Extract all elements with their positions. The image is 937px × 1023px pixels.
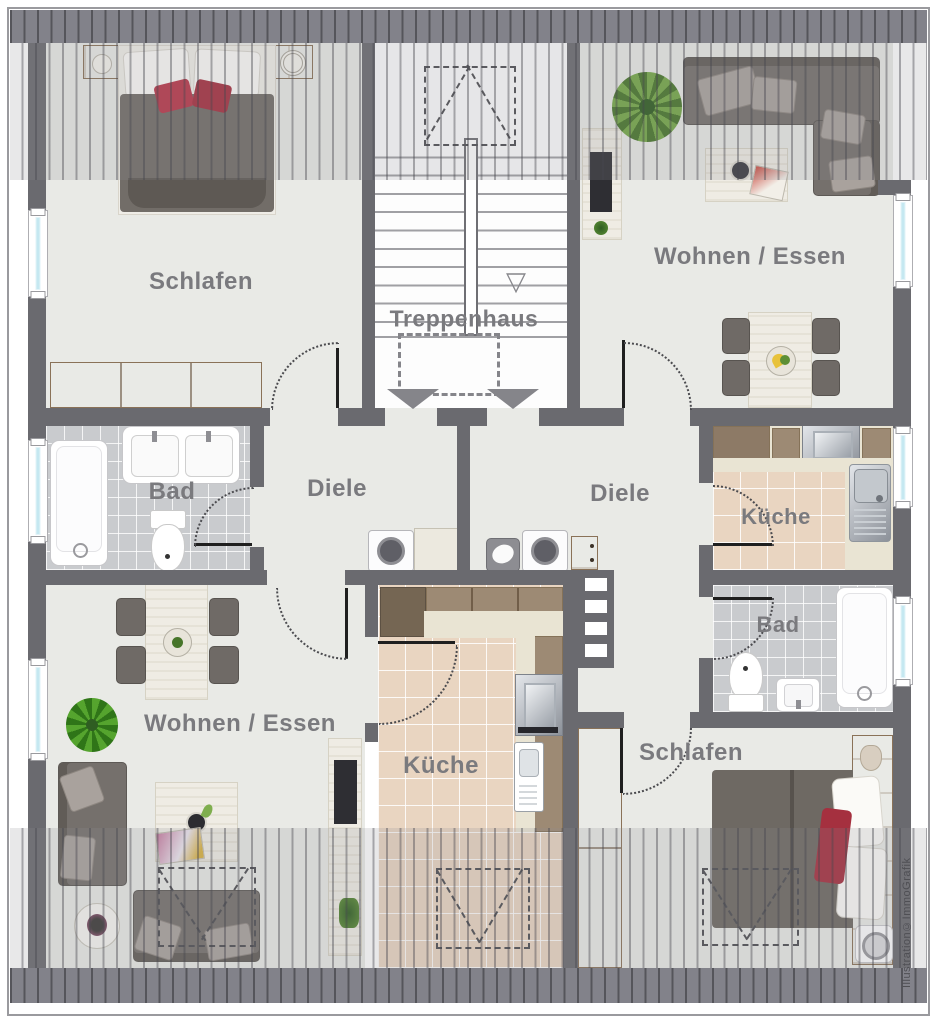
- wall: [28, 570, 267, 585]
- faucet: [206, 431, 211, 442]
- threshold: [624, 408, 690, 426]
- washbasin: [776, 678, 820, 712]
- window: [28, 440, 48, 542]
- window: [28, 210, 48, 297]
- staircase-opening-dashed: [398, 333, 500, 396]
- chair: [722, 360, 750, 396]
- wall: [457, 408, 470, 585]
- clothes: [489, 541, 517, 567]
- drainboard: [854, 507, 886, 535]
- skylight-diagonal: [201, 868, 249, 940]
- wall: [28, 408, 270, 426]
- window: [893, 195, 913, 287]
- skylight-diagonal: [436, 870, 480, 943]
- bedside-lamp: [280, 50, 306, 76]
- room-label-kueche-bl: Küche: [403, 752, 479, 780]
- chair: [812, 360, 840, 396]
- plant: [612, 72, 682, 142]
- tub-inner: [842, 593, 887, 694]
- room-label-kueche-r: Küche: [741, 504, 811, 530]
- tub-faucet: [73, 543, 88, 558]
- hood-inner: [813, 431, 853, 459]
- stove-strip: [518, 727, 558, 733]
- wall: [690, 408, 909, 426]
- toilet-bowl: [729, 652, 763, 700]
- skylight-schlafen-br: [702, 868, 799, 946]
- window-cap: [896, 281, 911, 289]
- window-cap: [31, 536, 46, 544]
- tub-inner: [56, 446, 102, 552]
- room-label-bad-r: Bad: [756, 612, 799, 638]
- cushion: [828, 155, 876, 193]
- skylight-diagonal: [158, 869, 206, 941]
- tub-faucet: [857, 686, 872, 701]
- side-table-round: [74, 903, 120, 949]
- window-cap: [896, 596, 911, 604]
- skylight-diagonal: [466, 65, 510, 139]
- wall: [699, 545, 713, 597]
- bedside-lamp: [92, 54, 112, 74]
- toilet: [148, 510, 186, 570]
- shelf-box: [585, 622, 607, 635]
- skylight-staircase: [424, 66, 516, 146]
- bathtub: [50, 440, 108, 566]
- entrance-arrow-right: [487, 389, 539, 409]
- window-cap: [896, 501, 911, 509]
- sideboard: [50, 362, 262, 408]
- room-label-wohnen-tr: Wohnen / Essen: [654, 243, 846, 271]
- plant: [66, 698, 118, 752]
- wall: [699, 570, 909, 585]
- skylight-diagonal: [479, 869, 523, 942]
- chair: [722, 318, 750, 354]
- chair: [116, 646, 146, 684]
- washing-machine: [368, 530, 414, 572]
- shelf-box: [585, 644, 607, 657]
- wall: [893, 285, 911, 428]
- toilet-tank: [728, 694, 764, 712]
- wardrobe: [578, 728, 622, 968]
- double-washbasin: [122, 426, 240, 484]
- dresser: [571, 536, 598, 570]
- room-label-diele-l: Diele: [307, 475, 367, 503]
- room-label-wohnen-bl: Wohnen / Essen: [144, 710, 336, 738]
- window-cap: [896, 426, 911, 434]
- skylight-kueche-bl: [436, 868, 530, 949]
- wall: [563, 570, 578, 968]
- wall: [28, 43, 46, 210]
- laundry-chair: [486, 538, 520, 572]
- window-cap: [31, 208, 46, 216]
- kitchen-cabinet-row: [426, 587, 563, 613]
- window-cap: [31, 438, 46, 446]
- table-bowl: [163, 628, 192, 657]
- kitchen-worktop: [424, 611, 563, 638]
- wall: [365, 723, 378, 742]
- sink-faucet: [876, 495, 883, 502]
- grapes: [780, 355, 790, 365]
- kitchen-sink: [514, 742, 544, 812]
- window: [893, 428, 913, 507]
- bedside-disc: [855, 925, 893, 963]
- wall: [362, 10, 375, 426]
- threshold: [270, 408, 338, 426]
- skylight-diagonal: [746, 869, 792, 939]
- cushion: [60, 834, 96, 881]
- chair: [209, 598, 239, 636]
- skylight-diagonal: [702, 870, 748, 940]
- washing-machine: [522, 530, 568, 572]
- wall: [539, 408, 624, 426]
- window: [28, 660, 48, 759]
- shelf-box: [585, 600, 607, 613]
- wall: [365, 570, 378, 637]
- plant-small: [594, 221, 608, 235]
- room-label-schlafen-br: Schlafen: [639, 739, 743, 767]
- wall: [28, 295, 46, 440]
- magazine: [155, 827, 205, 865]
- floor-plan: ▽: [0, 0, 937, 1023]
- window: [893, 598, 913, 685]
- stove-inner: [524, 683, 556, 729]
- sink-bowl: [519, 749, 539, 777]
- skylight-diagonal: [426, 66, 470, 140]
- threshold: [365, 637, 378, 723]
- faucet: [796, 700, 801, 709]
- drainboard: [519, 783, 537, 805]
- roof-band-bottom: [10, 968, 927, 1003]
- cup: [730, 160, 751, 181]
- duvet-fold: [128, 178, 266, 208]
- wall: [28, 757, 46, 970]
- cushion: [750, 76, 797, 114]
- window-cap: [31, 753, 46, 761]
- shelf-unit: [578, 570, 614, 668]
- chair: [209, 646, 239, 684]
- room-label-treppenhaus: Treppenhaus: [390, 306, 539, 333]
- skylight-living-bl: [158, 867, 256, 947]
- wall: [28, 540, 46, 660]
- wall: [250, 547, 264, 585]
- entrance-arrow-left: [387, 389, 439, 409]
- threshold: [267, 570, 345, 585]
- wall: [567, 10, 580, 426]
- wall: [699, 658, 713, 712]
- threshold: [699, 597, 713, 658]
- knob: [590, 558, 594, 562]
- toilet-flush: [165, 554, 170, 559]
- shelf-box: [585, 578, 607, 591]
- room-label-schlafen-tl: Schlafen: [149, 268, 253, 296]
- threshold: [385, 408, 437, 426]
- room-label-bad-l: Bad: [149, 478, 196, 506]
- roof-band-top: [10, 10, 927, 43]
- fruit-bowl: [766, 346, 796, 376]
- toilet: [726, 650, 764, 712]
- stove: [515, 674, 563, 736]
- wall: [690, 712, 909, 728]
- window-cap: [31, 291, 46, 299]
- hall-cabinet: [414, 528, 459, 572]
- wall: [699, 426, 713, 483]
- toilet-flush: [743, 666, 748, 671]
- kitchen-cabinet: [862, 428, 891, 460]
- watermark: Illustration©ImmoGrafik: [901, 836, 913, 988]
- threshold: [487, 408, 539, 426]
- fridge: [380, 587, 426, 637]
- window-cap: [896, 193, 911, 201]
- threshold: [624, 712, 690, 728]
- window-cap: [896, 679, 911, 687]
- tv: [334, 760, 357, 824]
- threshold: [699, 483, 713, 545]
- bowl-plant: [172, 637, 183, 648]
- table-plant: [87, 914, 107, 936]
- wall: [250, 408, 264, 487]
- window-cap: [31, 658, 46, 666]
- faucet: [152, 431, 157, 442]
- headboard-deco: [860, 745, 882, 771]
- knob: [590, 544, 594, 548]
- room-label-diele-r: Diele: [590, 480, 650, 508]
- kitchen-cabinet: [772, 428, 800, 460]
- stair-down-marker: ▽: [506, 268, 526, 294]
- bathtub: [836, 587, 893, 708]
- wall: [893, 505, 911, 598]
- chair: [116, 598, 146, 636]
- chair: [812, 318, 840, 354]
- tv: [590, 152, 612, 212]
- door-leaf: [378, 641, 455, 644]
- toilet-bowl: [151, 524, 185, 572]
- wall: [578, 712, 624, 728]
- plant-small: [339, 898, 359, 928]
- kitchen-sink: [849, 464, 891, 542]
- disc: [862, 932, 890, 960]
